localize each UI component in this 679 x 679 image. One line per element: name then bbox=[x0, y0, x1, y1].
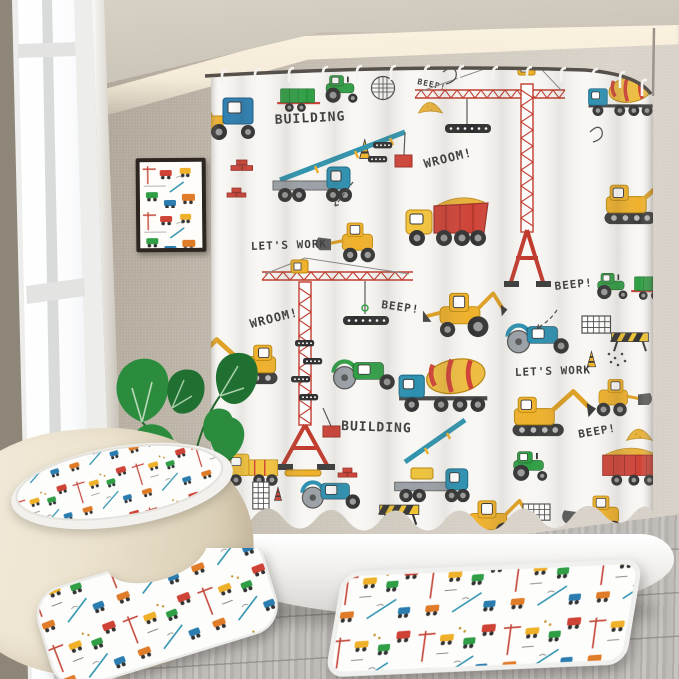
framed-art bbox=[136, 158, 207, 253]
rectangle-bath-mat bbox=[321, 555, 650, 679]
framed-art-print bbox=[140, 162, 203, 249]
curtain-folds-shading bbox=[211, 68, 653, 531]
rod-support bbox=[653, 28, 654, 96]
contour-mat bbox=[34, 548, 294, 679]
shower-curtain: BEEP! BUILDING bbox=[205, 20, 665, 570]
product-photo-scene: BEEP! BUILDING bbox=[0, 0, 679, 679]
toilet-lid-cover bbox=[2, 434, 244, 542]
window-rail-top bbox=[18, 42, 76, 58]
dots-doodle bbox=[394, 527, 411, 541]
